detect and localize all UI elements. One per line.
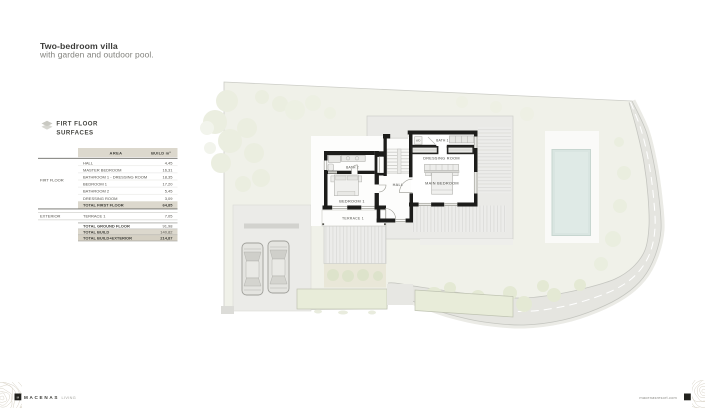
svg-text:TOTAL GROUND FLOOR: TOTAL GROUND FLOOR: [83, 224, 130, 229]
svg-text:LIVING: LIVING: [62, 396, 77, 400]
svg-text:BUILD m²: BUILD m²: [151, 151, 171, 156]
svg-text:DRESSING ROOM: DRESSING ROOM: [423, 157, 460, 161]
svg-text:5,45: 5,45: [165, 189, 174, 194]
svg-text:64,85: 64,85: [162, 203, 173, 208]
svg-text:MAIN BEDROOM: MAIN BEDROOM: [425, 182, 459, 186]
svg-text:TERRACE 1: TERRACE 1: [83, 213, 106, 218]
svg-text:17,20: 17,20: [162, 182, 173, 187]
svg-text:BEDROOM 1: BEDROOM 1: [83, 182, 108, 187]
svg-text:91,98: 91,98: [162, 224, 173, 229]
svg-text:with garden and outdoor pool.: with garden and outdoor pool.: [39, 50, 154, 60]
svg-text:140,82: 140,82: [160, 230, 173, 235]
svg-text:AREA: AREA: [110, 151, 123, 156]
svg-text:SURFACES: SURFACES: [56, 130, 93, 137]
svg-text:7,05: 7,05: [165, 213, 174, 218]
svg-text:BATH 1: BATH 1: [436, 139, 448, 143]
svg-text:3,09: 3,09: [165, 196, 174, 201]
svg-text:WD: WD: [416, 138, 420, 142]
svg-text:TOTAL FIRST FLOOR: TOTAL FIRST FLOOR: [83, 203, 124, 208]
svg-text:macenasresort.com: macenasresort.com: [639, 395, 677, 400]
svg-text:EXTERIOR: EXTERIOR: [40, 213, 61, 218]
svg-text:HALL: HALL: [83, 160, 94, 165]
svg-text:DRESSING ROOM: DRESSING ROOM: [83, 196, 117, 201]
svg-text:FIRT FLOOR: FIRT FLOOR: [40, 178, 64, 183]
svg-text:214,87: 214,87: [160, 236, 173, 241]
svg-text:FIRT FLOOR: FIRT FLOOR: [56, 120, 98, 127]
svg-text:TERRACE 1: TERRACE 1: [342, 217, 364, 221]
svg-text:4,45: 4,45: [165, 160, 174, 165]
svg-text:BEDROOM 1: BEDROOM 1: [339, 199, 365, 203]
svg-text:16,31: 16,31: [162, 167, 173, 172]
svg-text:MACENAS: MACENAS: [24, 395, 59, 400]
svg-text:MASTER BEDROOM: MASTER BEDROOM: [83, 167, 121, 172]
svg-text:18,35: 18,35: [162, 175, 173, 180]
svg-text:TOTAL BUILD: TOTAL BUILD: [83, 230, 109, 235]
svg-text:BATHROOM 1 - DRESSING ROOM: BATHROOM 1 - DRESSING ROOM: [83, 175, 147, 180]
svg-text:BATHROOM 2: BATHROOM 2: [83, 189, 110, 194]
svg-text:TOTAL BUILD+EXTERIOR: TOTAL BUILD+EXTERIOR: [83, 236, 132, 241]
